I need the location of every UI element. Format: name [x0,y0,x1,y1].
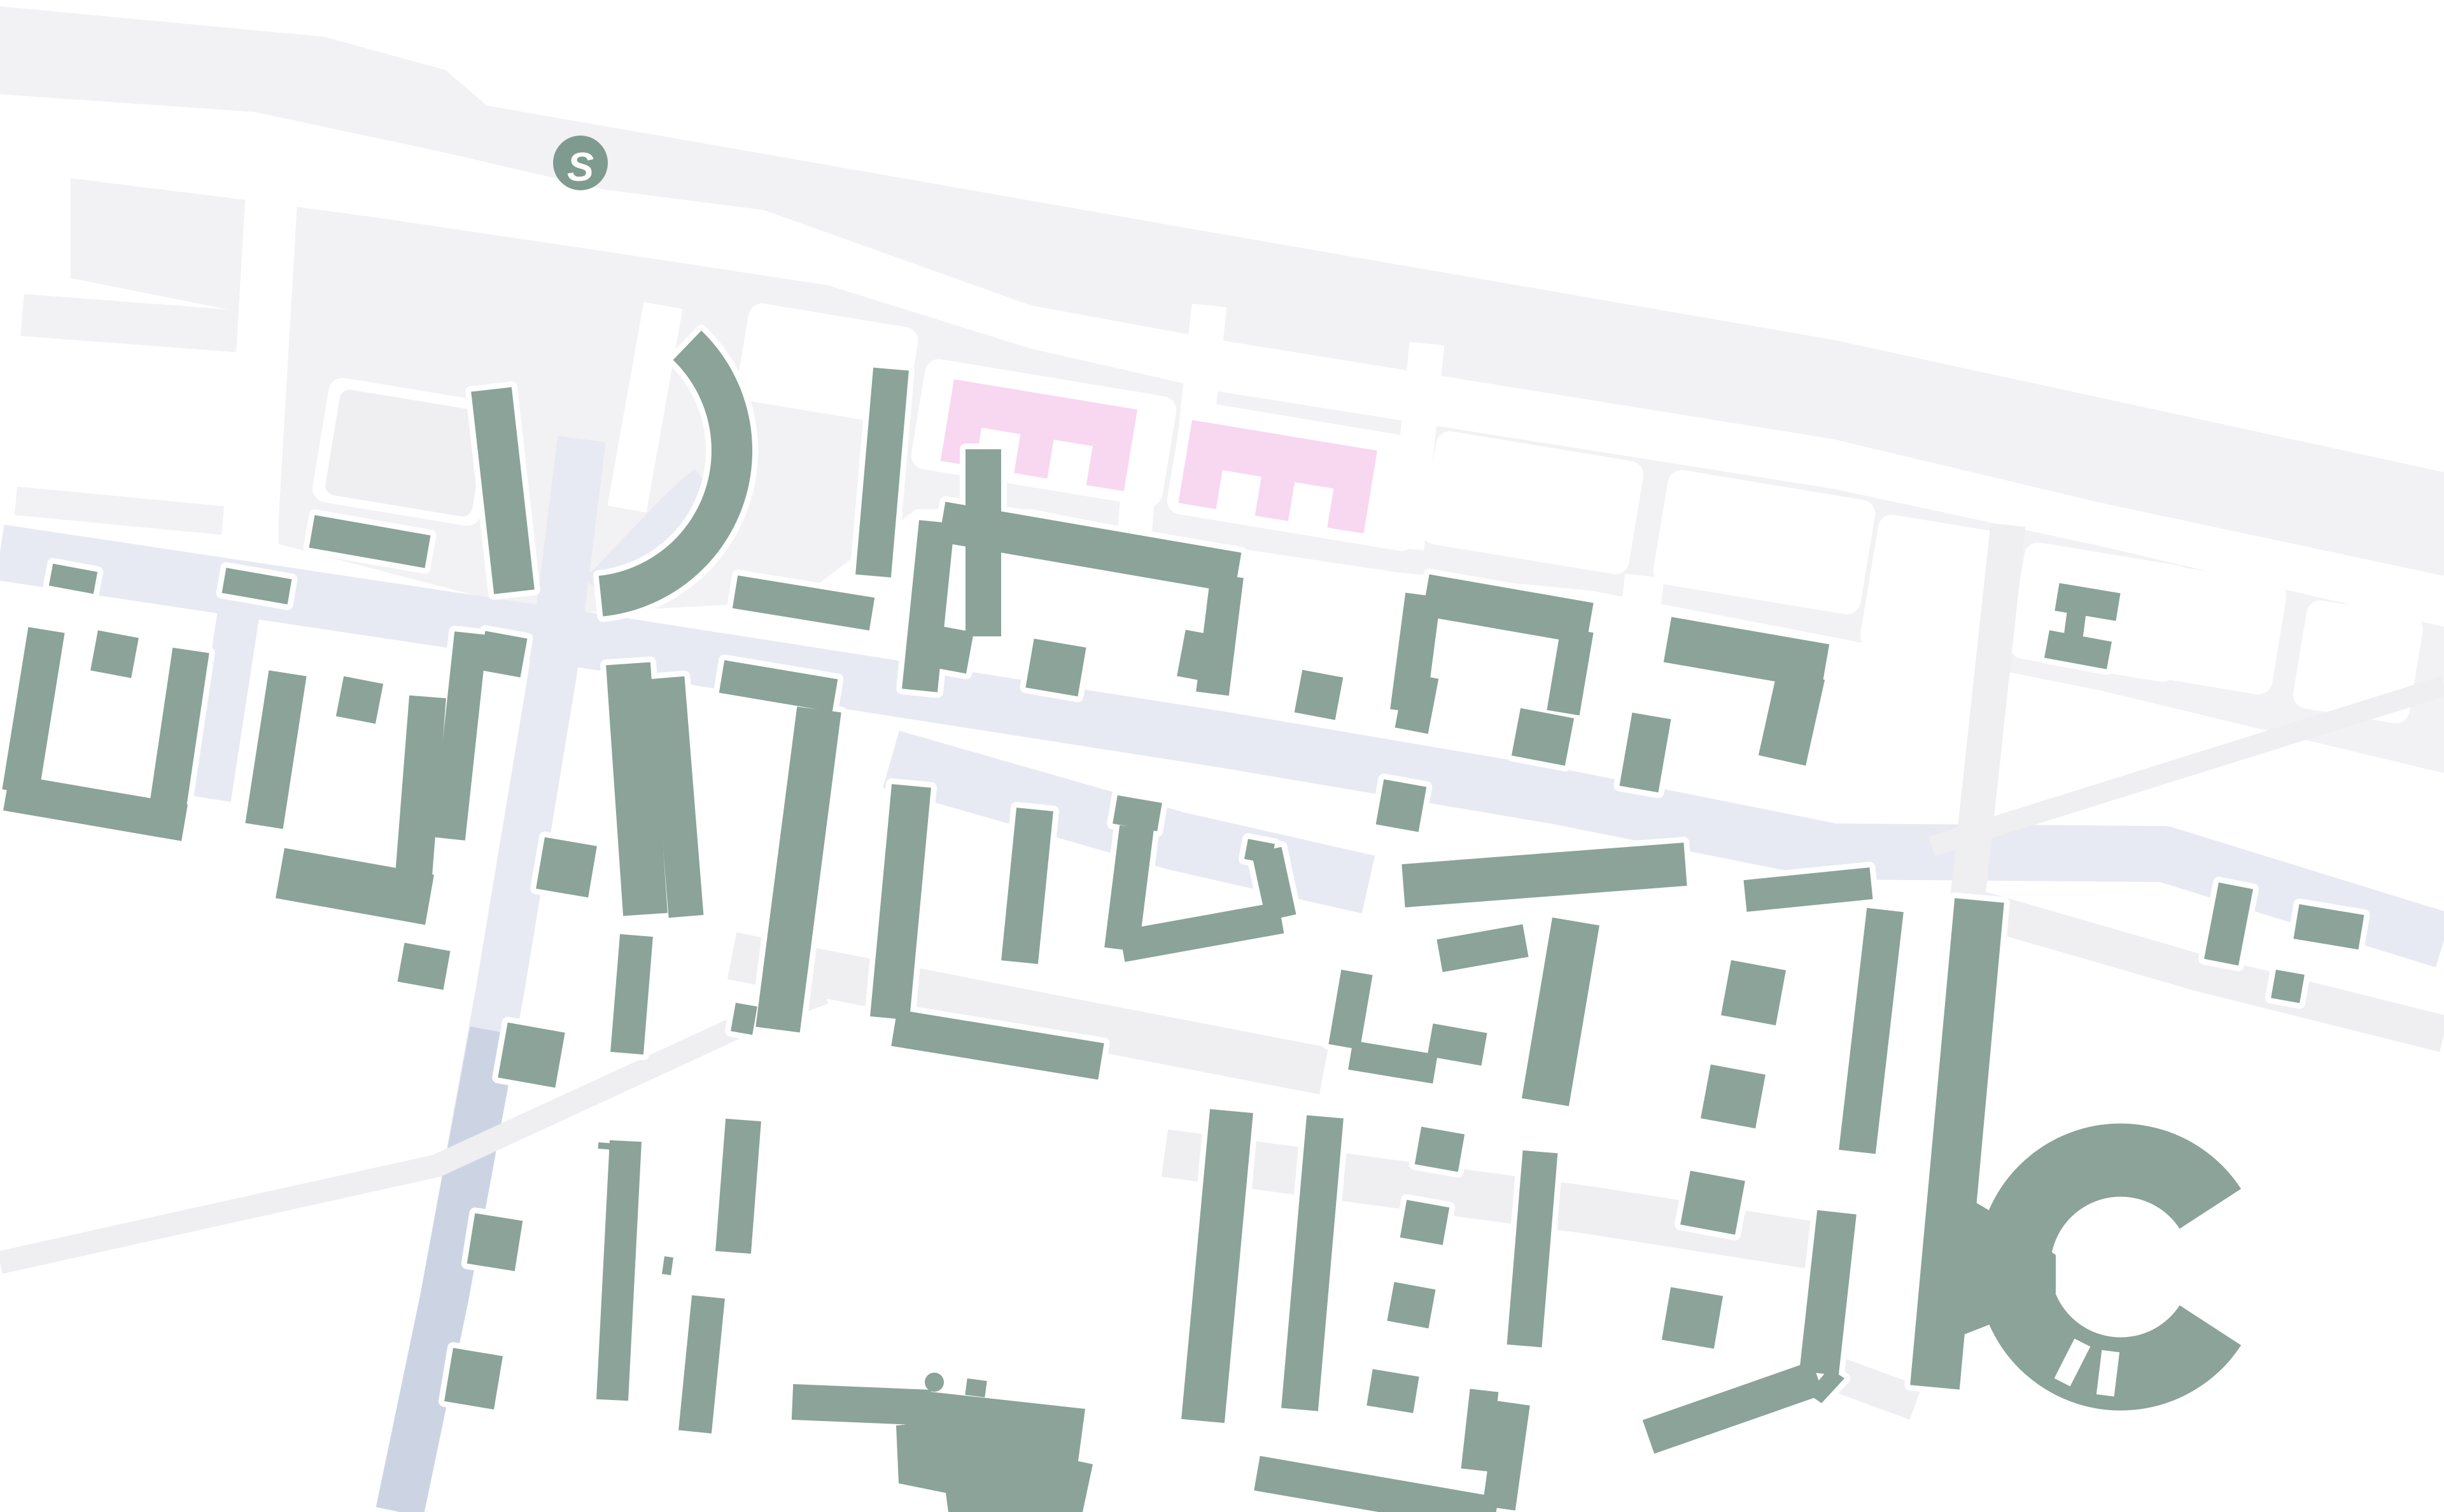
svg-text:S: S [567,145,594,190]
